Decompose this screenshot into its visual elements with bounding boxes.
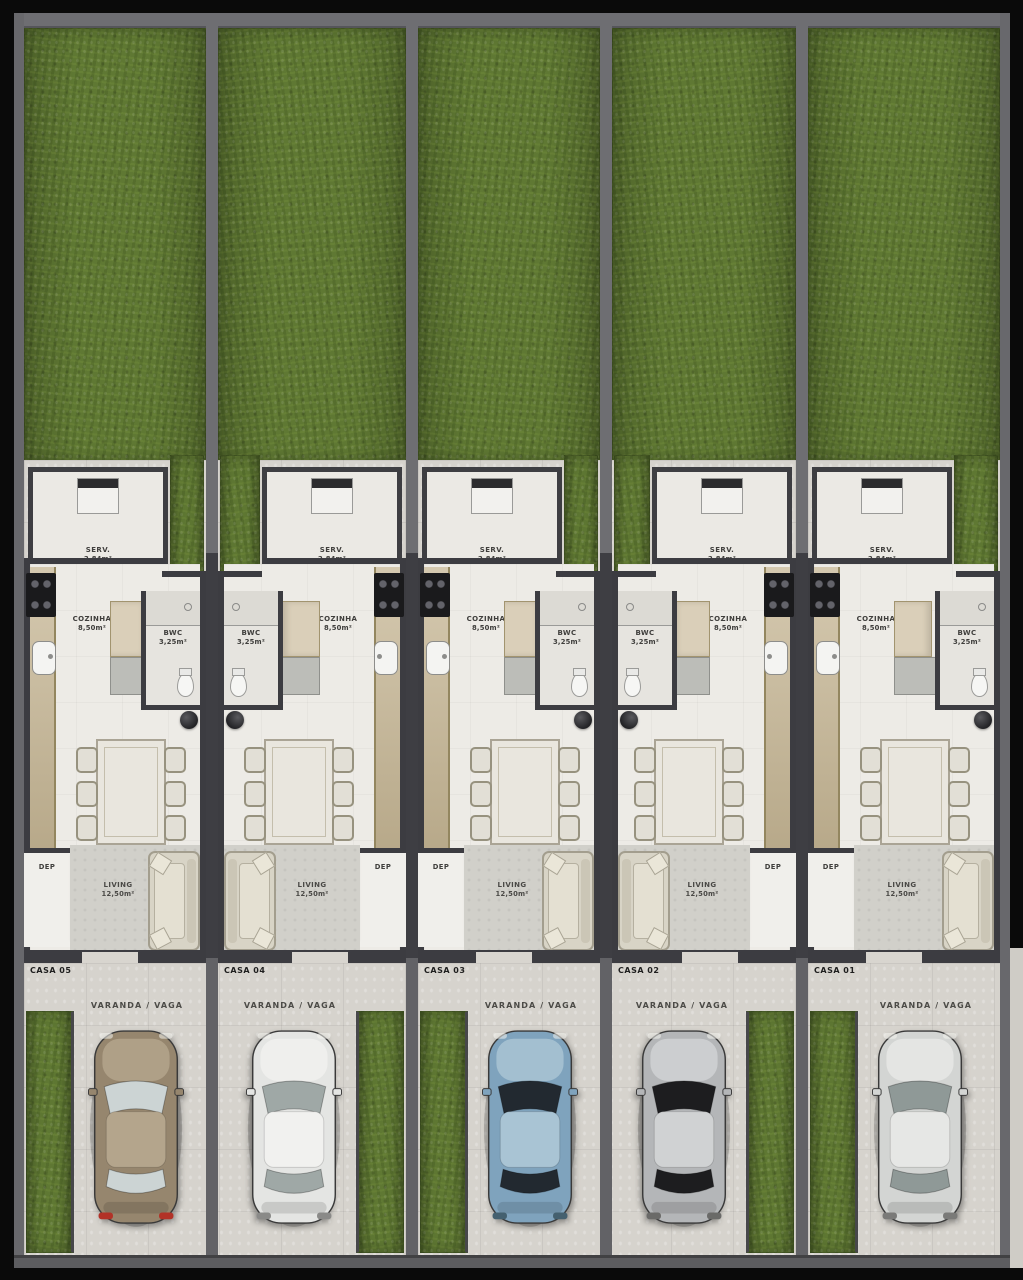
bwc-label: BWC 3,25m² [224,629,278,647]
unit-casa-03: SERV. 2,84m² COZINHA 8,50m² BWC [418,15,600,1255]
washing-machine [861,478,903,514]
stove [26,573,56,617]
front-grass-strip [356,1011,404,1253]
shower [224,591,278,626]
sofa-pillow [943,852,966,875]
sofa-pillow [943,927,966,950]
dining-chair [948,815,970,841]
wall-back-right [612,571,656,577]
bwc-room: BWC 3,25m² [618,591,677,710]
house-label: CASA 05 [30,966,71,975]
dep-label: DEP [418,863,464,872]
bwc-room: BWC 3,25m² [141,591,200,710]
pendant-lamp [574,711,592,729]
dep-room: DEP [808,848,859,947]
sofa-pillow [646,852,669,875]
dining-chair [164,781,186,807]
dep-room: DEP [355,848,406,947]
perimeter-wall-right [1000,13,1010,1268]
shower [146,591,200,626]
dining-chair [332,781,354,807]
kitchen-sink [32,641,56,675]
dining-chair [634,815,656,841]
wall-back-left [24,558,166,564]
pendant-lamp [226,711,244,729]
front-door [682,952,738,963]
wall-back-left [808,558,950,564]
wall-back-right [556,571,600,577]
dining-chair [948,747,970,773]
dining-chair [76,747,98,773]
dining-chair [722,747,744,773]
front-grass-strip [810,1011,858,1253]
stove [810,573,840,617]
dining-chair [722,781,744,807]
front-wall [612,950,796,963]
shower [540,591,594,626]
dining-chair [558,815,580,841]
varanda-label: VARANDA / VAGA [68,1001,206,1011]
unit-casa-01: SERV. 2,84m² COZINHA 8,50m² BWC [808,15,1000,1255]
sofa [942,851,994,951]
bwc-label: BWC 3,25m² [146,629,200,647]
dining-chair [76,815,98,841]
varanda-label: VARANDA / VAGA [218,1001,362,1011]
varanda-label: VARANDA / VAGA [462,1001,600,1011]
bwc-room: BWC 3,25m² [224,591,283,710]
dining-chair [164,747,186,773]
front-door [476,952,532,963]
wall-right [994,571,1000,957]
party-wall [600,13,612,1268]
living-label: LIVING 12,50m² [860,881,944,899]
wall-back-left [418,558,560,564]
party-wall [206,13,218,1268]
front-door [82,952,138,963]
backyard-grass [418,28,600,462]
living-label: LIVING 12,50m² [270,881,354,899]
dining-table [490,739,560,845]
front-wall [218,950,406,963]
cabinet [894,601,932,657]
sidewalk-strip [1010,948,1023,1268]
house-label: CASA 04 [224,966,265,975]
dining-chair [634,747,656,773]
house-label: CASA 01 [814,966,855,975]
shower [940,591,994,626]
sofa-pillow [543,852,566,875]
counter-block [894,657,936,695]
dining-chair [634,781,656,807]
dep-label: DEP [750,863,796,872]
counter-block [278,657,320,695]
dining-chair [164,815,186,841]
bwc-label: BWC 3,25m² [618,629,672,647]
wall-back-left [654,558,796,564]
bwc-label: BWC 3,25m² [940,629,994,647]
front-door [292,952,348,963]
dining-chair [860,815,882,841]
dining-chair [470,747,492,773]
living-label: LIVING 12,50m² [660,881,744,899]
dining-chair [722,815,744,841]
front-wall [418,950,600,963]
unit-casa-02: SERV. 2,84m² COZINHA 8,50m² BWC [612,15,796,1255]
car [636,1027,732,1229]
dining-chair [244,747,266,773]
car [482,1027,578,1229]
stove [420,573,450,617]
pendant-lamp [620,711,638,729]
toilet [177,673,194,697]
dep-label: DEP [360,863,406,872]
washing-machine [77,478,119,514]
dining-table [654,739,724,845]
backyard-grass [218,28,406,462]
pendant-lamp [180,711,198,729]
kitchen-sink [426,641,450,675]
dining-chair [470,781,492,807]
dining-chair [558,781,580,807]
cabinet [282,601,320,657]
backyard-grass [24,28,206,462]
kitchen-sink [764,641,788,675]
dining-chair [244,815,266,841]
front-grass-strip [746,1011,794,1253]
toilet [624,673,641,697]
dep-label: DEP [24,863,70,872]
front-grass-strip [26,1011,74,1253]
party-wall [796,13,808,1268]
sofa-pillow [543,927,566,950]
dep-room: DEP [418,848,469,947]
sofa-pillow [252,852,275,875]
bwc-room: BWC 3,25m² [935,591,994,710]
shower [618,591,672,626]
house-label: CASA 02 [618,966,659,975]
wall-back-left [264,558,406,564]
backyard-grass [612,28,796,462]
dep-room: DEP [745,848,796,947]
varanda-label: VARANDA / VAGA [852,1001,1000,1011]
dining-chair [860,781,882,807]
washing-machine [701,478,743,514]
stove [764,573,794,617]
sofa-pillow [252,927,275,950]
front-wall [808,950,1000,963]
front-door [866,952,922,963]
dep-room: DEP [24,848,75,947]
bwc-room: BWC 3,25m² [535,591,594,710]
site-plan-rendering: SERV. 2,84m² COZINHA 8,50m² BWC [0,0,1023,1280]
dining-table [96,739,166,845]
perimeter-wall-bottom [14,1255,1010,1268]
sofa [224,851,276,951]
bwc-label: BWC 3,25m² [540,629,594,647]
pendant-lamp [974,711,992,729]
kitchen-sink [816,641,840,675]
washing-machine [311,478,353,514]
sofa-pillow [149,927,172,950]
perimeter-wall-left [14,13,24,1268]
dining-chair [332,747,354,773]
dining-chair [332,815,354,841]
cabinet [672,601,710,657]
dining-chair [558,747,580,773]
sofa-pillow [646,927,669,950]
front-grass-strip [420,1011,468,1253]
car [246,1027,342,1229]
toilet [971,673,988,697]
dining-chair [860,747,882,773]
dining-chair [470,815,492,841]
kitchen-sink [374,641,398,675]
stove [374,573,404,617]
varanda-label: VARANDA / VAGA [612,1001,752,1011]
sofa [148,851,200,951]
wall-back-right [956,571,1000,577]
wall-back-right [162,571,206,577]
sofa [542,851,594,951]
party-wall [406,13,418,1268]
dining-chair [76,781,98,807]
washing-machine [471,478,513,514]
toilet [230,673,247,697]
dining-table [264,739,334,845]
backyard-grass [808,28,1000,462]
toilet [571,673,588,697]
house-label: CASA 03 [424,966,465,975]
unit-casa-05: SERV. 2,84m² COZINHA 8,50m² BWC [24,15,206,1255]
car [88,1027,184,1229]
dep-label: DEP [808,863,854,872]
car [872,1027,968,1229]
front-wall [24,950,206,963]
unit-casa-04: SERV. 2,84m² COZINHA 8,50m² BWC [218,15,406,1255]
dining-table [880,739,950,845]
wall-back-right [218,571,262,577]
dining-chair [244,781,266,807]
sofa-pillow [149,852,172,875]
sofa [618,851,670,951]
dining-chair [948,781,970,807]
